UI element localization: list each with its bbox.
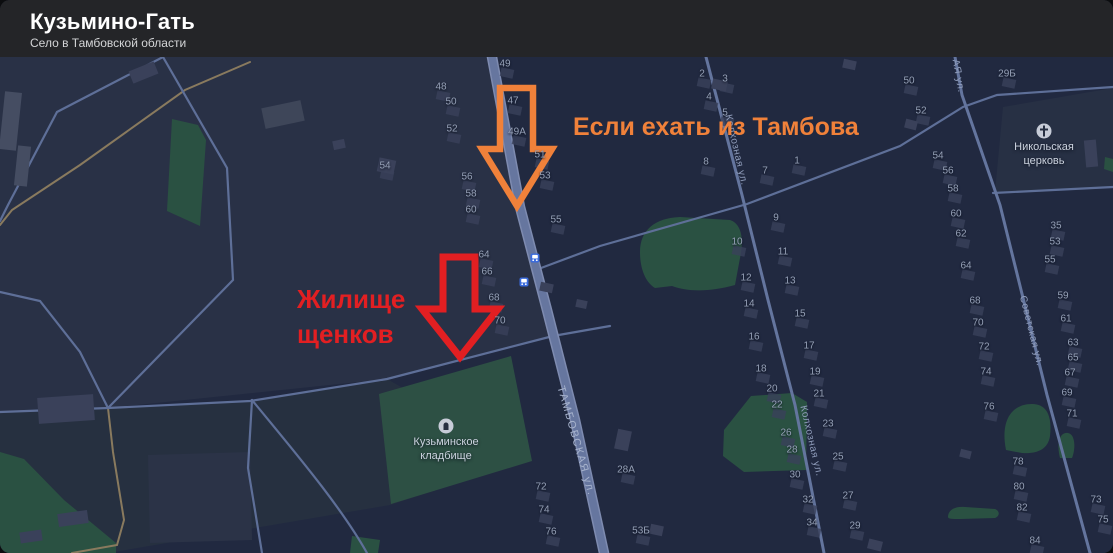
house-number: 50 [903,76,914,87]
bus-stop-icon[interactable] [531,254,540,263]
page-title: Кузьмино-Гать [30,10,1113,34]
house-number: 76 [545,527,556,538]
house-number: 64 [478,250,489,261]
house-number: 80 [1013,482,1024,493]
house-number: 50 [445,97,456,108]
house-number: 70 [972,318,983,329]
house-number: 63 [1067,338,1078,349]
house-number: 28А [617,465,635,476]
house-number: 61 [1060,314,1071,325]
house-number: 14 [743,299,754,310]
house-number: 49А [508,127,526,138]
house-number: 49 [499,59,510,70]
church-icon[interactable] [1037,124,1052,139]
house-number: 76 [983,402,994,413]
house-number: 18 [755,364,766,375]
house-number: 13 [784,276,795,287]
map-shapes [0,57,1113,553]
house-number: 64 [960,261,971,272]
page-subtitle: Село в Тамбовской области [30,36,1113,50]
house-number: 82 [1016,503,1027,514]
house-number: 2 [699,69,705,80]
house-number: 52 [915,106,926,117]
house-number: 54 [379,161,390,172]
house-number: 34 [806,518,817,529]
house-number: 51 [534,150,545,161]
house-number: 25 [832,452,843,463]
bus-stop-icon[interactable] [520,278,529,287]
fields-layer [0,57,1113,553]
house-number: 15 [794,309,805,320]
house-number: 32 [802,495,813,506]
house-number: 21 [813,389,824,400]
house-number: 55 [550,215,561,226]
house-number: 60 [465,205,476,216]
red-annotation-text: Жилище щенков [297,282,405,352]
house-number: 48 [435,82,446,93]
house-number: 27 [842,491,853,502]
house-number: 78 [1012,457,1023,468]
house-number: 29Б [998,69,1016,80]
house-number: 62 [955,229,966,240]
house-number: 68 [488,293,499,304]
house-number: 58 [465,189,476,200]
house-number: 1 [794,156,800,167]
map-canvas[interactable]: 4948505254565860646668707274764749А51535… [0,57,1113,553]
house-number: 53Б [632,526,650,537]
house-number: 35 [1050,221,1061,232]
map-header: Кузьмино-Гать Село в Тамбовской области [0,0,1113,57]
house-number: 28 [786,445,797,456]
house-number: 75 [1097,515,1108,526]
orange-annotation-text: Если ехать из Тамбова [573,113,859,142]
church-label[interactable]: Никольскаяцерковь [1014,141,1074,169]
house-number: 58 [947,184,958,195]
house-number: 66 [481,267,492,278]
house-number: 68 [969,296,980,307]
house-number: 73 [1090,495,1101,506]
house-number: 19 [809,367,820,378]
red-annotation-line2: щенков [297,317,405,352]
house-number: 10 [731,237,742,248]
house-number: 20 [766,384,777,395]
house-number: 67 [1064,368,1075,379]
house-number: 11 [778,247,788,258]
house-number: 56 [461,172,472,183]
house-number: 69 [1061,388,1072,399]
house-number: 53 [1049,237,1060,248]
red-annotation-line1: Жилище [297,282,405,317]
house-number: 23 [822,419,833,430]
house-number: 53 [539,171,550,182]
map-card: Кузьмино-Гать Село в Тамбовской области … [0,0,1113,553]
house-number: 12 [740,273,751,284]
house-number: 17 [803,341,814,352]
house-number: 7 [762,166,768,177]
house-number: 8 [703,157,709,168]
house-number: 30 [789,470,800,481]
house-number: 65 [1067,353,1078,364]
house-number: 70 [494,316,505,327]
house-number: 16 [748,332,759,343]
house-number: 9 [773,213,779,224]
house-number: 60 [950,209,961,220]
house-number: 52 [446,124,457,135]
house-number: 72 [535,482,546,493]
house-number: 47 [507,96,518,107]
grave-icon[interactable] [439,419,454,434]
house-number: 72 [978,342,989,353]
house-number: 22 [771,400,782,411]
house-number: 55 [1044,255,1055,266]
house-number: 74 [980,367,991,378]
cemetery-label[interactable]: Кузьминскоекладбище [413,436,478,464]
house-number: 29 [849,521,860,532]
house-number: 59 [1057,291,1068,302]
house-number: 74 [538,505,549,516]
house-number: 4 [706,92,712,103]
house-number: 54 [932,151,943,162]
house-number: 26 [780,428,791,439]
house-number: 56 [942,166,953,177]
house-number: 84 [1029,536,1040,547]
house-number: 3 [722,74,728,85]
house-number: 71 [1066,409,1077,420]
